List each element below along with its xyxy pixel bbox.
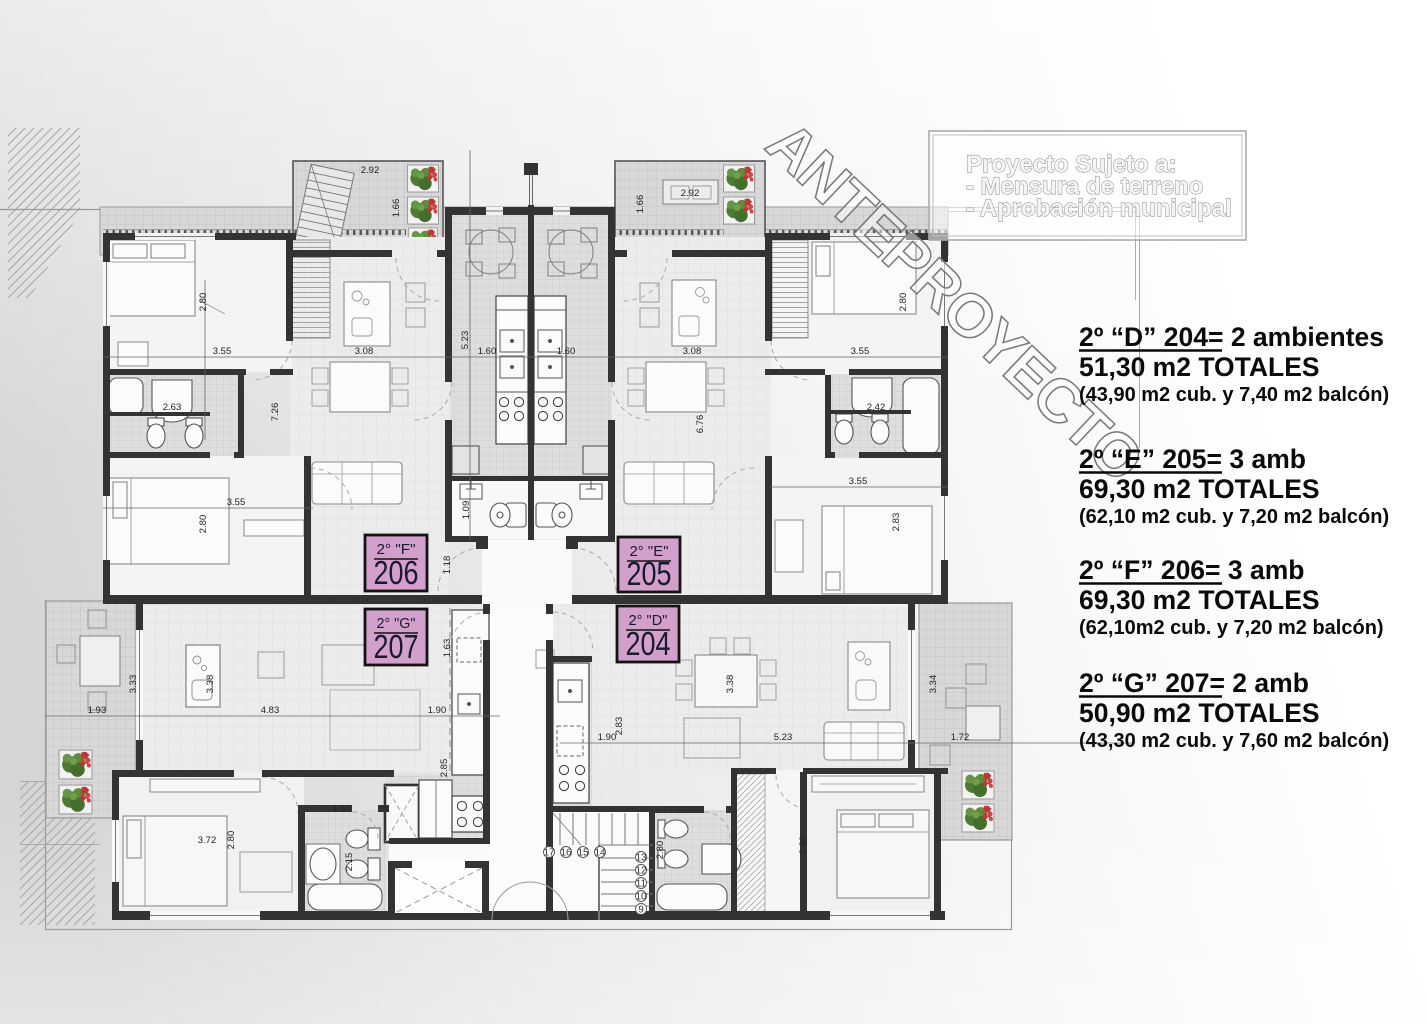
svg-text:2º “F” 206= 3 amb: 2º “F” 206= 3 amb [1079,555,1304,585]
svg-text:1.63: 1.63 [442,639,453,658]
svg-text:1.09: 1.09 [461,501,472,520]
svg-text:1.90: 1.90 [428,705,447,716]
svg-text:204: 204 [626,626,671,663]
svg-text:13: 13 [635,853,647,864]
svg-text:2.80: 2.80 [226,831,237,850]
svg-text:2º “E” 205= 3 amb: 2º “E” 205= 3 amb [1079,444,1306,474]
svg-text:2.80: 2.80 [655,841,666,860]
svg-text:2º “G” 207= 2 amb: 2º “G” 207= 2 amb [1079,668,1309,698]
svg-text:2º “D” 204= 2 ambientes: 2º “D” 204= 2 ambientes [1079,322,1384,352]
svg-text:(62,10m2 cub. y 7,20 m2 balcón: (62,10m2 cub. y 7,20 m2 balcón) [1079,617,1384,639]
svg-text:206: 206 [374,555,419,592]
svg-text:3.34: 3.34 [928,675,939,694]
svg-text:2.63: 2.63 [163,402,182,413]
svg-text:1.60: 1.60 [557,346,576,357]
svg-text:2.80: 2.80 [798,836,809,855]
svg-text:1.18: 1.18 [442,556,453,575]
svg-text:15: 15 [577,848,589,859]
svg-text:1.93: 1.93 [88,705,107,716]
svg-text:2.92: 2.92 [361,165,380,176]
svg-text:(62,10 m2 cub. y 7,20 m2 balcó: (62,10 m2 cub. y 7,20 m2 balcón) [1079,506,1389,528]
svg-text:207: 207 [374,629,419,666]
svg-text:2.92: 2.92 [681,188,700,199]
svg-text:1.51: 1.51 [333,804,352,815]
svg-text:5.23: 5.23 [774,732,793,743]
svg-text:3.55: 3.55 [227,497,246,508]
svg-text:(43,90 m2 cub. y 7,40 m2 balcó: (43,90 m2 cub. y 7,40 m2 balcón) [1079,384,1389,406]
svg-text:(43,30 m2 cub. y 7,60 m2 balcó: (43,30 m2 cub. y 7,60 m2 balcón) [1079,730,1389,752]
svg-text:12: 12 [635,866,647,877]
svg-text:11: 11 [636,879,647,890]
svg-text:3.08: 3.08 [683,346,702,357]
svg-text:9: 9 [638,905,644,916]
svg-text:69,30 m2 TOTALES: 69,30 m2 TOTALES [1079,585,1320,615]
svg-text:1.66: 1.66 [391,199,402,218]
svg-text:2.83: 2.83 [891,513,902,532]
svg-text:- Aprobación municipal: - Aprobación municipal [966,195,1232,222]
svg-text:1.72: 1.72 [951,732,970,743]
svg-text:69,30 m2 TOTALES: 69,30 m2 TOTALES [1079,474,1320,504]
svg-text:3.55: 3.55 [851,346,870,357]
svg-text:3.33: 3.33 [128,675,139,694]
svg-text:2.42: 2.42 [867,402,886,413]
svg-text:51,30 m2 TOTALES: 51,30 m2 TOTALES [1079,352,1320,382]
svg-text:2.83: 2.83 [614,717,625,736]
svg-text:16: 16 [560,848,572,859]
svg-text:3.72: 3.72 [198,835,217,846]
svg-text:3.38: 3.38 [205,675,216,694]
svg-text:7.26: 7.26 [270,403,281,422]
svg-text:10: 10 [635,892,647,903]
svg-text:2.80: 2.80 [198,515,209,534]
svg-text:1.60: 1.60 [478,346,497,357]
svg-text:1.66: 1.66 [635,195,646,214]
svg-text:4.83: 4.83 [261,705,280,716]
svg-text:3.38: 3.38 [725,675,736,694]
svg-text:3.55: 3.55 [213,346,232,357]
svg-text:205: 205 [627,556,672,593]
svg-text:2.85: 2.85 [439,759,450,778]
svg-text:2.80: 2.80 [198,293,209,312]
svg-text:2.15: 2.15 [344,853,355,872]
svg-text:14: 14 [594,848,606,859]
svg-text:17: 17 [543,848,555,859]
svg-text:3.55: 3.55 [849,476,868,487]
svg-text:3.08: 3.08 [355,346,374,357]
svg-text:5.23: 5.23 [460,331,471,350]
svg-text:50,90 m2 TOTALES: 50,90 m2 TOTALES [1079,698,1320,728]
svg-text:6.76: 6.76 [695,415,706,434]
